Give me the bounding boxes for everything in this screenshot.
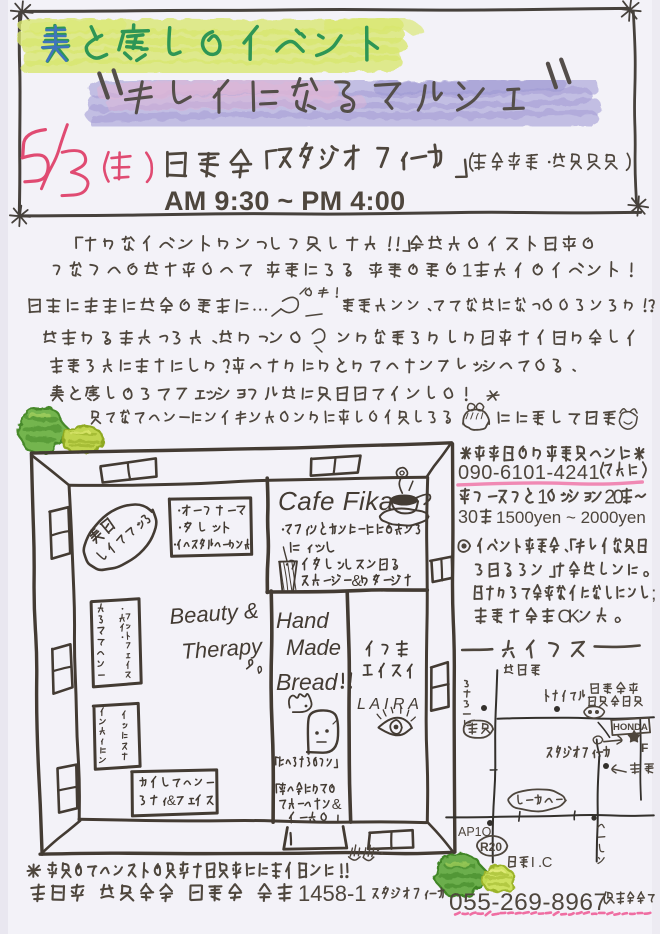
svg-text:&: &	[351, 573, 362, 590]
svg-text:090-6101-4241: 090-6101-4241	[458, 462, 600, 484]
svg-text:;: ;	[651, 584, 656, 605]
svg-text:Made: Made	[286, 635, 341, 660]
svg-text:&: &	[167, 793, 176, 808]
svg-text:L A I R A: L A I R A	[357, 696, 419, 713]
svg-text:Hand: Hand	[276, 608, 329, 633]
svg-text:&: &	[332, 797, 342, 813]
svg-text:Bread: Bread	[276, 669, 339, 695]
svg-text:30: 30	[458, 507, 478, 527]
svg-text:F: F	[641, 741, 648, 755]
svg-text:K: K	[568, 607, 581, 628]
svg-text:1: 1	[462, 261, 473, 282]
svg-text:R20: R20	[480, 840, 502, 854]
svg-text:1458-1: 1458-1	[298, 881, 367, 906]
svg-text:Cafe Fika: Cafe Fika	[278, 486, 394, 516]
svg-text:0: 0	[613, 486, 624, 508]
svg-text:1: 1	[537, 486, 548, 508]
svg-text:C: C	[542, 855, 553, 871]
svg-text:AM 9:30 ~ PM 4:00: AM 9:30 ~ PM 4:00	[164, 186, 405, 216]
svg-text:HONDA: HONDA	[613, 722, 648, 733]
svg-text:I: I	[531, 855, 535, 871]
svg-text:1500yen ~ 2000yen: 1500yen ~ 2000yen	[496, 508, 646, 527]
